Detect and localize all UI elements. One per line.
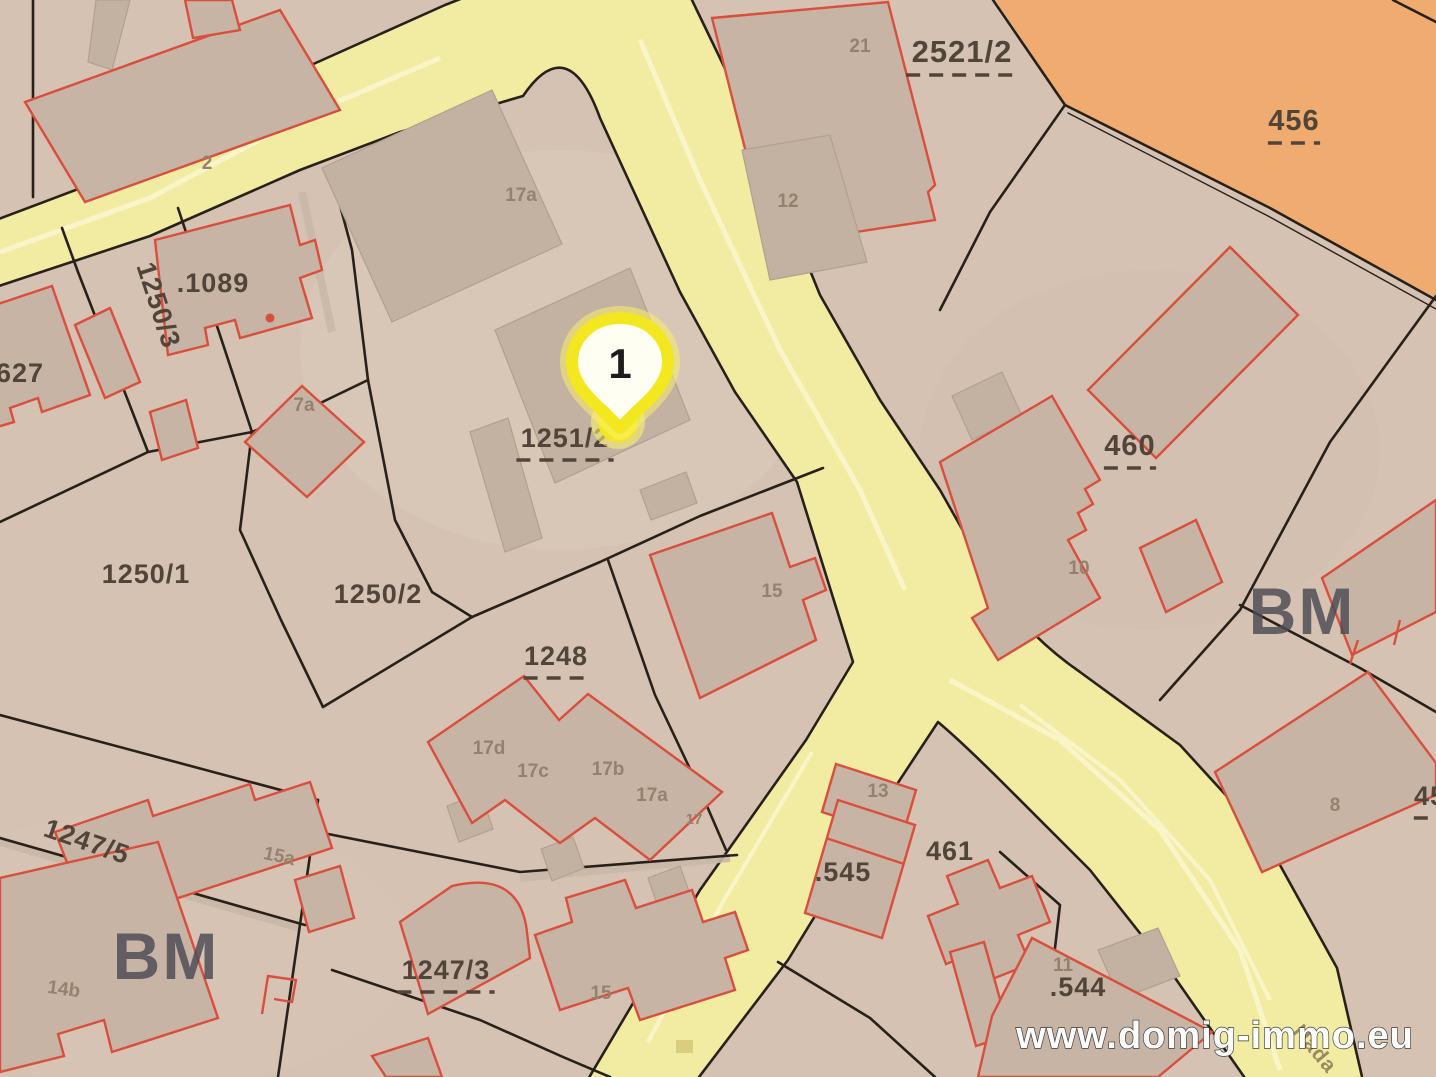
watermark: www.domig-immo.eu	[1015, 1015, 1414, 1057]
parcel-label: 627	[0, 358, 44, 388]
parcel-label: 1248	[524, 641, 588, 671]
building-label: 15	[590, 983, 612, 1004]
building-label: 17a	[505, 185, 537, 206]
parcel-boundary	[323, 617, 472, 707]
parcel-label: 1250/2	[334, 579, 423, 609]
parcel-label: 1247/3	[402, 955, 491, 985]
building-label: 17c	[517, 761, 549, 782]
marker-number: 1	[608, 340, 631, 387]
building-label: 13	[867, 781, 888, 802]
building-label: 17b	[592, 759, 625, 780]
parcel-label: 2521/2	[912, 34, 1013, 69]
parcel-label: .544	[1050, 972, 1107, 1002]
parcel-label: 1250/1	[102, 559, 191, 589]
parcel-label: .1089	[177, 268, 250, 298]
building-label: 12	[777, 191, 798, 212]
parcel-boundary	[0, 715, 318, 800]
region-label: BM	[1249, 574, 1356, 648]
road-tick	[676, 1040, 693, 1053]
building-small-top	[185, 0, 240, 38]
building-rounded	[400, 883, 530, 1014]
parcel-456-orange-area	[993, 0, 1436, 300]
building-15	[650, 513, 826, 698]
building-8	[1215, 672, 1436, 872]
survey-point	[266, 314, 275, 323]
building-cut	[372, 1038, 442, 1077]
driveway	[88, 0, 130, 70]
map-canvas[interactable]: .10891250/36271250/11250/21251/212481247…	[0, 0, 1436, 1077]
building-label: 10	[1068, 558, 1089, 579]
building-label: 11	[1053, 955, 1074, 976]
building-label: 17a	[636, 785, 668, 806]
region-label: BM	[113, 919, 220, 993]
building-label: 21	[849, 36, 871, 57]
cadastral-map[interactable]: .10891250/36271250/11250/21251/212481247…	[0, 0, 1436, 1077]
parcel-boundary	[778, 962, 935, 1077]
building-label: 17d	[473, 738, 506, 759]
building-label: 2	[202, 153, 213, 174]
parcel-label: 45	[1414, 781, 1436, 811]
building-label: 7a	[293, 395, 315, 416]
building-label: 17	[686, 811, 703, 828]
building-label: 15	[761, 581, 783, 602]
parcel-label: 461	[926, 836, 974, 866]
parcel-label: 456	[1268, 105, 1319, 137]
parcel-boundary	[940, 105, 1065, 310]
parcel-label: .545	[815, 857, 872, 887]
parcel-label: 460	[1104, 430, 1155, 462]
building-label: 8	[1330, 795, 1341, 816]
